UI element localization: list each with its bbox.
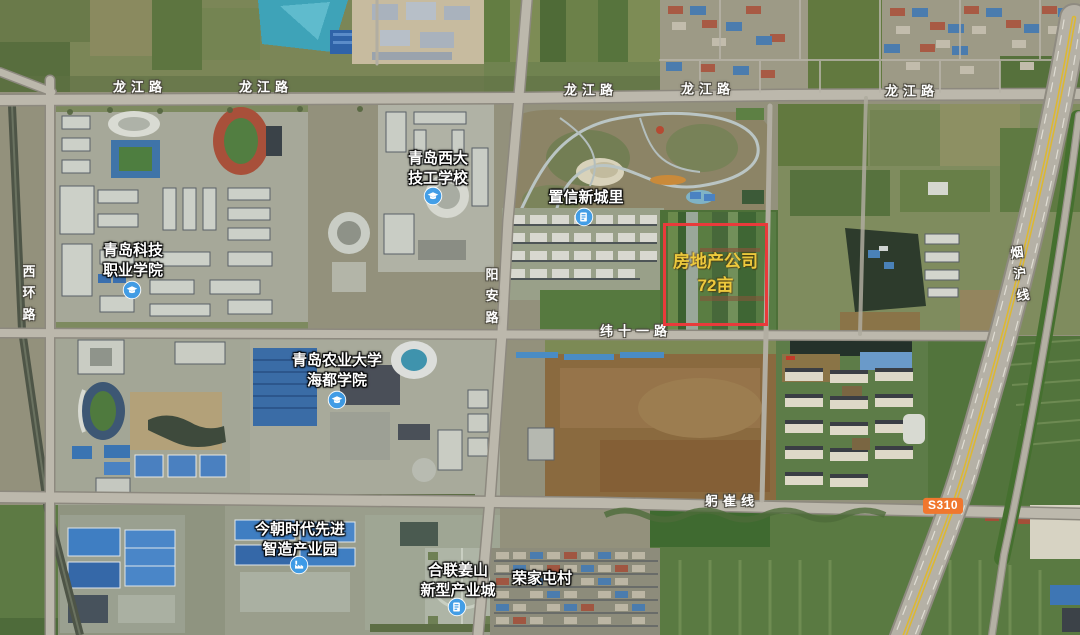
poi-label: 青岛农业大学	[292, 351, 382, 371]
poi-label: 今朝时代先进	[255, 520, 345, 540]
poi-qingdao-xida-school[interactable]: 青岛西大 技工学校	[408, 149, 468, 190]
poi-label: 海都学院	[292, 371, 382, 391]
route-badge-s310: S310	[923, 498, 963, 514]
poi-qingdao-keji-college[interactable]: 青岛科技 职业学院	[103, 241, 163, 282]
community-icon[interactable]	[448, 598, 467, 617]
school-icon[interactable]	[424, 187, 443, 206]
poi-helian-jiangshan-city[interactable]: 合联姜山 新型产业城	[420, 561, 495, 602]
poi-qingdao-nongye-haidu[interactable]: 青岛农业大学 海都学院	[292, 351, 382, 392]
satellite-map[interactable]: 龙江路 龙江路 龙江路 龙江路 龙江路 纬十一路 躬崔线 西环路 阳安路 烟沪线…	[0, 0, 1080, 635]
poi-label: 荣家屯村	[512, 569, 572, 589]
school-icon[interactable]	[328, 391, 347, 410]
community-icon[interactable]	[575, 208, 594, 227]
school-icon[interactable]	[123, 281, 142, 300]
poi-rongjiatun-village[interactable]: 荣家屯村	[512, 569, 572, 589]
poi-zhixin-xinchengli[interactable]: 置信新城里	[548, 188, 623, 208]
poi-label: 合联姜山	[420, 561, 495, 581]
factory-icon[interactable]	[290, 556, 309, 575]
land-parcel-annotation: 房地产公司 72亩	[663, 223, 768, 326]
annotation-company-text: 房地产公司	[673, 253, 758, 272]
annotation-area-text: 72亩	[698, 277, 734, 296]
poi-label: 青岛科技	[103, 241, 163, 261]
poi-label: 青岛西大	[408, 149, 468, 169]
poi-jinzhao-industrial-park[interactable]: 今朝时代先进 智造产业园	[255, 520, 345, 561]
poi-label: 职业学院	[103, 261, 163, 281]
satellite-imagery	[0, 0, 1080, 635]
poi-label: 置信新城里	[548, 188, 623, 208]
